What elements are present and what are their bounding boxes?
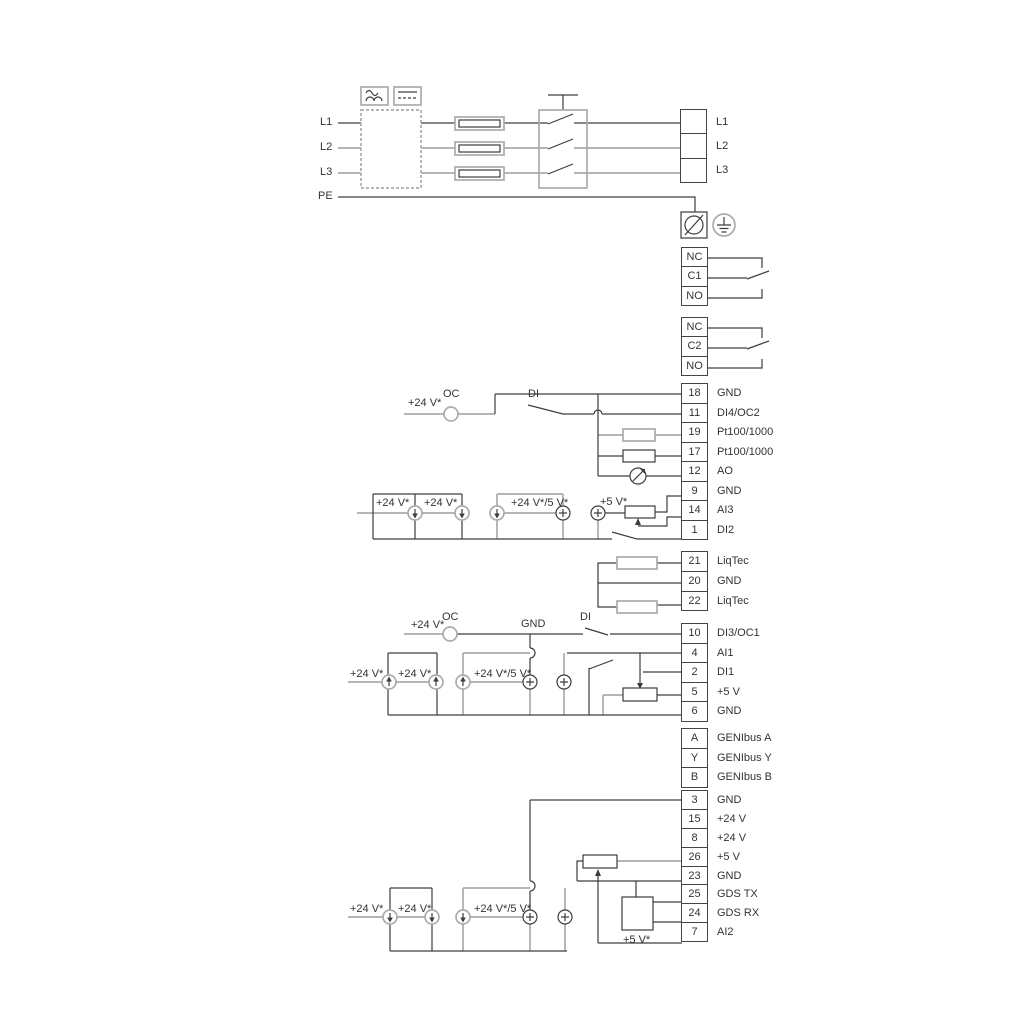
terminal-label: GENIbus A bbox=[717, 732, 771, 744]
terminal-row: L3 bbox=[680, 158, 728, 183]
power-wires-black bbox=[338, 95, 695, 212]
wiring-diagram: L1 L2 L3 PE +24 V* OC DI +24 V* +24 V* +… bbox=[0, 0, 1024, 1024]
terminal-row: 12AO bbox=[681, 461, 773, 482]
terminal-label: +24 V bbox=[717, 832, 746, 844]
terminal-row: BGENIbus B bbox=[681, 767, 772, 788]
terminal-label: AO bbox=[717, 465, 733, 477]
terminal-row: 19Pt100/1000 bbox=[681, 422, 773, 443]
genibus-block: AGENIbus AYGENIbus YBGENIbus B bbox=[681, 729, 772, 788]
pt-sensor-resistor bbox=[623, 429, 655, 441]
liqtec-section bbox=[598, 557, 682, 613]
label-oc: OC bbox=[443, 388, 460, 401]
power-input-label: L2 bbox=[320, 141, 332, 154]
terminal-label: GND bbox=[717, 794, 741, 806]
terminal-cell: 18 bbox=[681, 383, 708, 404]
terminal-cell bbox=[680, 109, 707, 134]
terminal-row: 17Pt100/1000 bbox=[681, 442, 773, 463]
liqtec-block: 21LiqTec20GND22LiqTec bbox=[681, 552, 749, 611]
terminal-cell: 4 bbox=[681, 643, 708, 664]
terminal-row: 1DI2 bbox=[681, 520, 773, 541]
terminal-row: 9GND bbox=[681, 481, 773, 502]
wire-layer bbox=[0, 0, 1024, 1024]
label-24v: +24 V* bbox=[376, 497, 409, 510]
terminal-label: GND bbox=[717, 485, 741, 497]
io3-section bbox=[348, 800, 682, 951]
terminal-cell: 12 bbox=[681, 461, 708, 482]
terminal-row: 7AI2 bbox=[681, 922, 759, 942]
terminal-cell: 11 bbox=[681, 403, 708, 424]
terminal-row: 14AI3 bbox=[681, 500, 773, 521]
terminal-cell: C2 bbox=[681, 336, 708, 356]
terminal-cell: C1 bbox=[681, 266, 708, 286]
label-24v-5v: +24 V*/5 V* bbox=[474, 668, 531, 681]
terminal-label: AI2 bbox=[717, 926, 734, 938]
dc-symbol-box bbox=[394, 87, 421, 105]
power-input-label: L3 bbox=[320, 166, 332, 179]
label-5v: +5 V* bbox=[623, 934, 650, 947]
terminal-row: NO bbox=[681, 356, 717, 376]
terminal-cell: 21 bbox=[681, 551, 708, 572]
pt-sensor-resistor bbox=[623, 450, 655, 462]
terminal-row: 15+24 V bbox=[681, 809, 759, 829]
terminal-cell: Y bbox=[681, 748, 708, 769]
label-5v: +5 V* bbox=[600, 496, 627, 509]
terminal-cell: 22 bbox=[681, 591, 708, 612]
terminal-label: DI4/OC2 bbox=[717, 407, 760, 419]
terminal-label: GENIbus Y bbox=[717, 752, 772, 764]
terminal-cell: 8 bbox=[681, 828, 708, 848]
terminal-row: C2 bbox=[681, 336, 717, 356]
power-input-label: L1 bbox=[320, 116, 332, 129]
terminal-row: 25GDS TX bbox=[681, 884, 759, 904]
terminal-cell: 6 bbox=[681, 701, 708, 722]
terminal-row: L1 bbox=[680, 109, 728, 134]
terminal-label: GND bbox=[717, 870, 741, 882]
drive-box bbox=[361, 110, 421, 188]
terminal-row: AGENIbus A bbox=[681, 728, 772, 749]
terminal-cell: 1 bbox=[681, 520, 708, 541]
relay2-block: NCC2NO bbox=[681, 318, 717, 376]
terminal-label: Pt100/1000 bbox=[717, 426, 773, 438]
terminal-label: GDS TX bbox=[717, 888, 758, 900]
liqtec-resistor bbox=[617, 557, 657, 569]
potentiometer-wiper-arrow bbox=[595, 869, 601, 876]
terminal-cell: 15 bbox=[681, 809, 708, 829]
potentiometer-wiper-arrow bbox=[635, 518, 641, 525]
terminal-row: 2DI1 bbox=[681, 662, 760, 683]
terminal-cell: 7 bbox=[681, 922, 708, 942]
potentiometer bbox=[583, 855, 617, 868]
terminal-label: Pt100/1000 bbox=[717, 446, 773, 458]
terminal-row: 8+24 V bbox=[681, 828, 759, 848]
label-24v: +24 V* bbox=[408, 397, 441, 410]
terminal-row: 24GDS RX bbox=[681, 903, 759, 923]
terminal-label: L1 bbox=[716, 116, 728, 128]
terminal-cell: B bbox=[681, 767, 708, 788]
terminal-label: AI1 bbox=[717, 647, 734, 659]
terminal-row: NO bbox=[681, 286, 717, 306]
terminal-cell: 19 bbox=[681, 422, 708, 443]
terminal-label: LiqTec bbox=[717, 595, 749, 607]
potentiometer bbox=[625, 506, 655, 518]
power-input-label: PE bbox=[318, 190, 333, 203]
label-24v: +24 V* bbox=[398, 668, 431, 681]
terminal-cell: NC bbox=[681, 317, 708, 337]
terminal-label: AI3 bbox=[717, 504, 734, 516]
terminal-row: 23GND bbox=[681, 866, 759, 886]
terminal-row: L2 bbox=[680, 133, 728, 158]
terminal-cell: NO bbox=[681, 356, 708, 376]
terminal-cell: 9 bbox=[681, 481, 708, 502]
terminal-cell: 14 bbox=[681, 500, 708, 521]
terminal-row: YGENIbus Y bbox=[681, 748, 772, 769]
label-24v-5v: +24 V*/5 V* bbox=[474, 903, 531, 916]
label-24v: +24 V* bbox=[411, 619, 444, 632]
gds-sensor-box bbox=[622, 897, 653, 930]
terminal-label: DI3/OC1 bbox=[717, 627, 760, 639]
terminal-row: C1 bbox=[681, 266, 717, 286]
terminal-row: 22LiqTec bbox=[681, 591, 749, 612]
oc-source-icon bbox=[443, 627, 457, 641]
io-block-2: 10DI3/OC14AI12DI15+5 V6GND bbox=[681, 624, 760, 722]
label-24v: +24 V* bbox=[398, 903, 431, 916]
terminal-cell: 23 bbox=[681, 866, 708, 886]
power-wires-gray bbox=[338, 148, 680, 173]
terminal-cell: 20 bbox=[681, 571, 708, 592]
terminal-cell: 3 bbox=[681, 790, 708, 810]
power-output-block: L1L2L3 bbox=[680, 110, 728, 183]
terminal-label: GDS RX bbox=[717, 907, 759, 919]
label-24v-5v: +24 V*/5 V* bbox=[511, 497, 568, 510]
io1-section bbox=[357, 394, 682, 539]
ac-symbol-icon bbox=[366, 91, 382, 102]
label-gnd: GND bbox=[521, 618, 545, 631]
terminal-row: 6GND bbox=[681, 701, 760, 722]
terminal-row: NC bbox=[681, 317, 717, 337]
terminal-row: 3GND bbox=[681, 790, 759, 810]
earth-glyph bbox=[717, 217, 731, 232]
terminal-cell: 10 bbox=[681, 623, 708, 644]
terminal-label: DI2 bbox=[717, 524, 734, 536]
fuse bbox=[455, 117, 504, 180]
terminal-row: 4AI1 bbox=[681, 643, 760, 664]
terminal-cell: 17 bbox=[681, 442, 708, 463]
terminal-row: 18GND bbox=[681, 383, 773, 404]
oc-source-icon bbox=[444, 407, 458, 421]
terminal-row: 21LiqTec bbox=[681, 551, 749, 572]
terminal-cell: NO bbox=[681, 286, 708, 306]
terminal-label: GND bbox=[717, 705, 741, 717]
terminal-cell: 2 bbox=[681, 662, 708, 683]
terminal-cell: 26 bbox=[681, 847, 708, 867]
terminal-label: +5 V bbox=[717, 686, 740, 698]
label-24v: +24 V* bbox=[350, 668, 383, 681]
terminal-row: 20GND bbox=[681, 571, 749, 592]
terminal-cell bbox=[680, 158, 707, 183]
terminal-label: +5 V bbox=[717, 851, 740, 863]
switch-blades bbox=[548, 139, 573, 174]
terminal-label: L3 bbox=[716, 164, 728, 176]
terminal-label: GND bbox=[717, 575, 741, 587]
io-block-1: 18GND11DI4/OC219Pt100/100017Pt100/100012… bbox=[681, 384, 773, 540]
io2-wires-black bbox=[388, 628, 682, 715]
terminal-row: 26+5 V bbox=[681, 847, 759, 867]
io-block-3: 3GND15+24 V8+24 V26+5 V23GND25GDS TX24GD… bbox=[681, 791, 759, 942]
terminal-label: DI1 bbox=[717, 666, 734, 678]
terminal-label: +24 V bbox=[717, 813, 746, 825]
terminal-cell: 25 bbox=[681, 884, 708, 904]
label-24v: +24 V* bbox=[424, 497, 457, 510]
label-di: DI bbox=[528, 388, 539, 401]
terminal-label: GENIbus B bbox=[717, 771, 772, 783]
terminal-row: 10DI3/OC1 bbox=[681, 623, 760, 644]
label-di: DI bbox=[580, 611, 591, 624]
terminal-label: LiqTec bbox=[717, 555, 749, 567]
terminal-label: L2 bbox=[716, 140, 728, 152]
relay1-block: NCC1NO bbox=[681, 248, 717, 306]
terminal-cell: NC bbox=[681, 247, 708, 267]
label-24v: +24 V* bbox=[350, 903, 383, 916]
potentiometer bbox=[623, 688, 657, 701]
terminal-row: 5+5 V bbox=[681, 682, 760, 703]
liqtec-resistor bbox=[617, 601, 657, 613]
terminal-cell: 5 bbox=[681, 682, 708, 703]
terminal-cell: 24 bbox=[681, 903, 708, 923]
main-switch-box bbox=[539, 110, 587, 188]
terminal-row: 11DI4/OC2 bbox=[681, 403, 773, 424]
terminal-cell: A bbox=[681, 728, 708, 749]
terminal-cell bbox=[680, 133, 707, 158]
label-oc: OC bbox=[442, 611, 459, 624]
power-section bbox=[338, 87, 735, 238]
terminal-row: NC bbox=[681, 247, 717, 267]
terminal-label: GND bbox=[717, 387, 741, 399]
